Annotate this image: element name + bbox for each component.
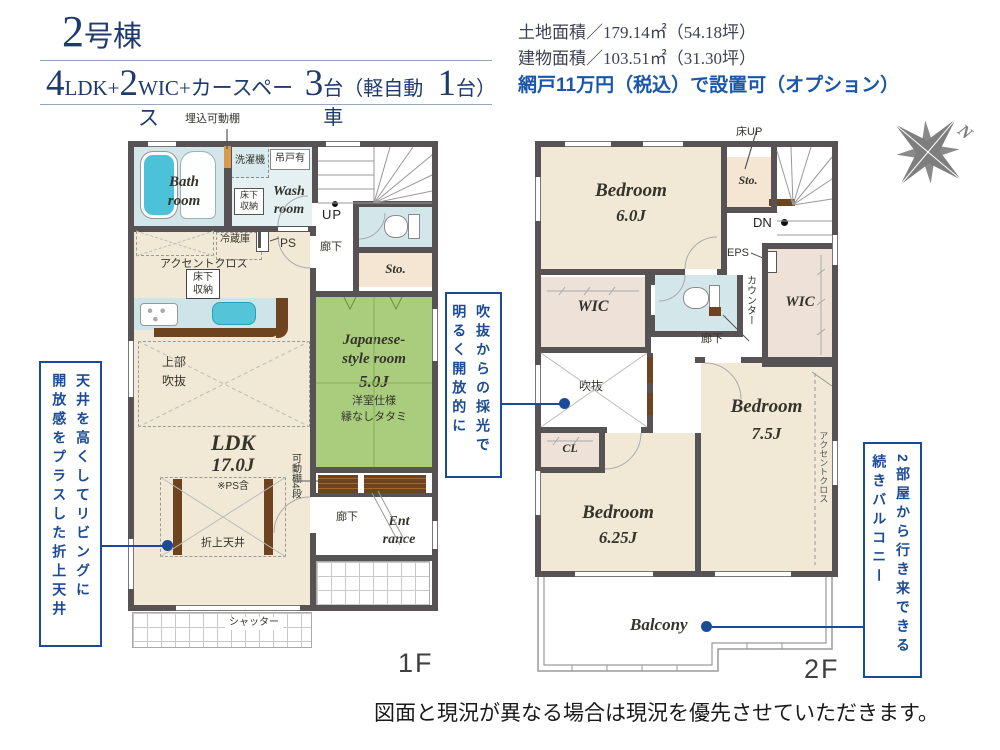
layout-summary: 4 LDK+ 2 WIC+カースペース 3 台（軽自動車 1 台）	[46, 62, 496, 132]
balcony-label: Balcony	[630, 614, 688, 635]
ldk-count: 4	[46, 62, 65, 105]
building-area: 建物面積／103.51㎡（31.30坪）	[518, 46, 899, 72]
note-void-light: 吹抜からの採光で 明るく開放的に	[445, 292, 502, 478]
ldk-label: LDK+	[65, 76, 120, 101]
screen-door-option-note: 網戸11万円（税込）で設置可（オプション）	[518, 72, 899, 100]
compass-north-label: N	[953, 120, 977, 144]
note-middle-connector	[502, 403, 560, 405]
shutter-label: シャッター	[225, 617, 283, 630]
floor2-linework	[535, 141, 838, 577]
header-divider-top	[40, 60, 492, 61]
floor2-label: 2F	[804, 654, 840, 685]
kei-count: 1	[438, 62, 457, 105]
building-number: 2	[62, 7, 84, 56]
bathroom-label: Bath room	[152, 173, 216, 211]
compass-rose-icon: N	[863, 87, 993, 217]
closet-label: CL	[541, 441, 599, 456]
header-divider-bottom	[40, 104, 492, 105]
floor1-label: 1F	[398, 648, 434, 679]
floor2-plan: Bedroom 6.0J Sto. DN EPS カウンター WIC WIC 廊…	[535, 141, 838, 577]
note-balcony: 2部屋から行き来できる 続きバルコニー	[863, 442, 922, 678]
building-title: 2号棟	[62, 6, 142, 57]
accent-cloth-label-2f: アクセントクロス	[817, 431, 828, 503]
wic-count: 2	[120, 62, 139, 105]
porch-tiles	[132, 612, 312, 648]
embedded-shelf-label: 埋込可動棚	[185, 113, 240, 127]
flyer-page: 2号棟 4 LDK+ 2 WIC+カースペース 3 台（軽自動車 1 台） 土地…	[0, 0, 1000, 750]
note-left-dot	[162, 540, 173, 551]
floor1-linework	[128, 141, 438, 611]
kei-label: 台）	[456, 72, 496, 101]
note-right-connector	[712, 626, 863, 628]
land-area: 土地面積／179.14㎡（54.18坪）	[518, 20, 899, 46]
car-count: 3	[305, 62, 324, 105]
hall-2f-label: 廊下	[701, 333, 723, 347]
site-info: 土地面積／179.14㎡（54.18坪） 建物面積／103.51㎡（31.30坪…	[518, 20, 899, 100]
building-suffix: 号棟	[84, 21, 142, 53]
floor-up-label: 床UP	[736, 126, 762, 140]
note-right-dot	[701, 621, 712, 632]
note-middle-dot	[559, 398, 570, 409]
car-label: 台（軽自動車	[323, 72, 437, 130]
disclaimer-text: 図面と現況が異なる場合は現況を優先させていただきます。	[374, 697, 939, 727]
floor1-plan: 洗濯機 吊戸有 床下 収納 冷蔵庫 アクセントクロス 床下 収納 上部 吹抜 折…	[128, 141, 438, 611]
note-left-connector	[102, 545, 163, 547]
note-coffered-ceiling: 天井を高くしてリビングに 開放感をプラスした折上天井	[39, 361, 102, 647]
